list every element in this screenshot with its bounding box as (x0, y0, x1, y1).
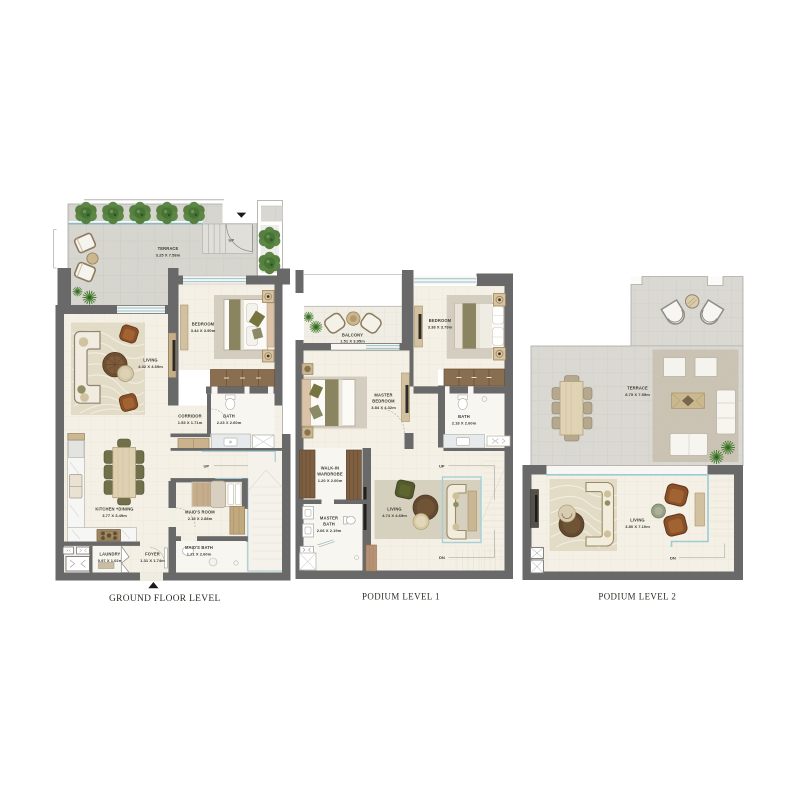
svg-text:KITCHEN +DINING: KITCHEN +DINING (95, 507, 133, 512)
svg-text:FOYER: FOYER (145, 552, 160, 557)
svg-text:4.32 X 4.69m: 4.32 X 4.69m (138, 364, 163, 369)
svg-text:3.84 X 4.32m: 3.84 X 4.32m (371, 405, 396, 410)
svg-text:1.53 X 1.71m: 1.53 X 1.71m (178, 420, 203, 425)
svg-text:8.75 X 7.55m: 8.75 X 7.55m (625, 392, 650, 397)
svg-text:MASTER: MASTER (374, 393, 392, 398)
svg-text:TERRACE: TERRACE (158, 246, 179, 251)
svg-text:2.18 X 2.60m: 2.18 X 2.60m (452, 421, 477, 426)
svg-text:LAUNDRY: LAUNDRY (100, 552, 121, 557)
svg-text:BATH: BATH (458, 414, 470, 419)
svg-text:PODIUM LEVEL 1: PODIUM LEVEL 1 (362, 591, 440, 601)
svg-text:BATH: BATH (323, 522, 335, 527)
svg-text:DN: DN (439, 555, 445, 560)
svg-text:4.74 X 4.69m: 4.74 X 4.69m (382, 513, 407, 518)
svg-text:BEDROOM: BEDROOM (372, 399, 395, 404)
svg-text:1.31 X 1.74m: 1.31 X 1.74m (140, 558, 165, 563)
svg-text:2.23 X 2.60m: 2.23 X 2.60m (217, 420, 242, 425)
svg-text:1.21 X 2.60m: 1.21 X 2.60m (187, 552, 212, 557)
svg-text:3.44 X 3.90m: 3.44 X 3.90m (191, 328, 216, 333)
svg-text:3.38 X 3.79m: 3.38 X 3.79m (428, 325, 453, 330)
svg-text:GROUND FLOOR LEVEL: GROUND FLOOR LEVEL (109, 594, 221, 604)
svg-text:PODIUM LEVEL 2: PODIUM LEVEL 2 (598, 591, 676, 601)
svg-text:UP: UP (204, 464, 210, 469)
svg-text:BALCONY: BALCONY (342, 333, 363, 338)
svg-text:LIVING: LIVING (630, 518, 645, 523)
svg-text:MASTER: MASTER (320, 516, 338, 521)
svg-text:1.51 X 3.95m: 1.51 X 3.95m (340, 339, 365, 344)
svg-text:BEDROOM: BEDROOM (192, 322, 215, 327)
svg-text:LIVING: LIVING (387, 507, 402, 512)
svg-text:BEDROOM: BEDROOM (429, 318, 452, 323)
svg-text:UP: UP (439, 464, 445, 469)
svg-text:3.80 X 7.10m: 3.80 X 7.10m (625, 524, 650, 529)
svg-text:LIVING: LIVING (143, 358, 158, 363)
svg-text:0.97 X 1.02m: 0.97 X 1.02m (98, 558, 123, 563)
svg-text:2.66 X 2.19m: 2.66 X 2.19m (317, 528, 342, 533)
svg-text:1.20 X 2.00m: 1.20 X 2.00m (318, 478, 343, 483)
svg-text:DN: DN (670, 556, 676, 561)
svg-text:BATH: BATH (223, 414, 235, 419)
svg-text:3.77 X 3.49m: 3.77 X 3.49m (102, 513, 127, 518)
svg-text:3.25 X 7.58m: 3.25 X 7.58m (156, 253, 181, 258)
svg-text:MAID'S BATH: MAID'S BATH (185, 545, 213, 550)
svg-text:MAID'S ROOM: MAID'S ROOM (185, 510, 215, 515)
svg-text:TERRACE: TERRACE (627, 386, 648, 391)
svg-text:CORRIDOR: CORRIDOR (178, 414, 202, 419)
svg-text:2.15 X 2.88m: 2.15 X 2.88m (188, 516, 213, 521)
svg-text:WARDROBE: WARDROBE (317, 472, 343, 477)
svg-text:WALK-IN: WALK-IN (321, 466, 340, 471)
